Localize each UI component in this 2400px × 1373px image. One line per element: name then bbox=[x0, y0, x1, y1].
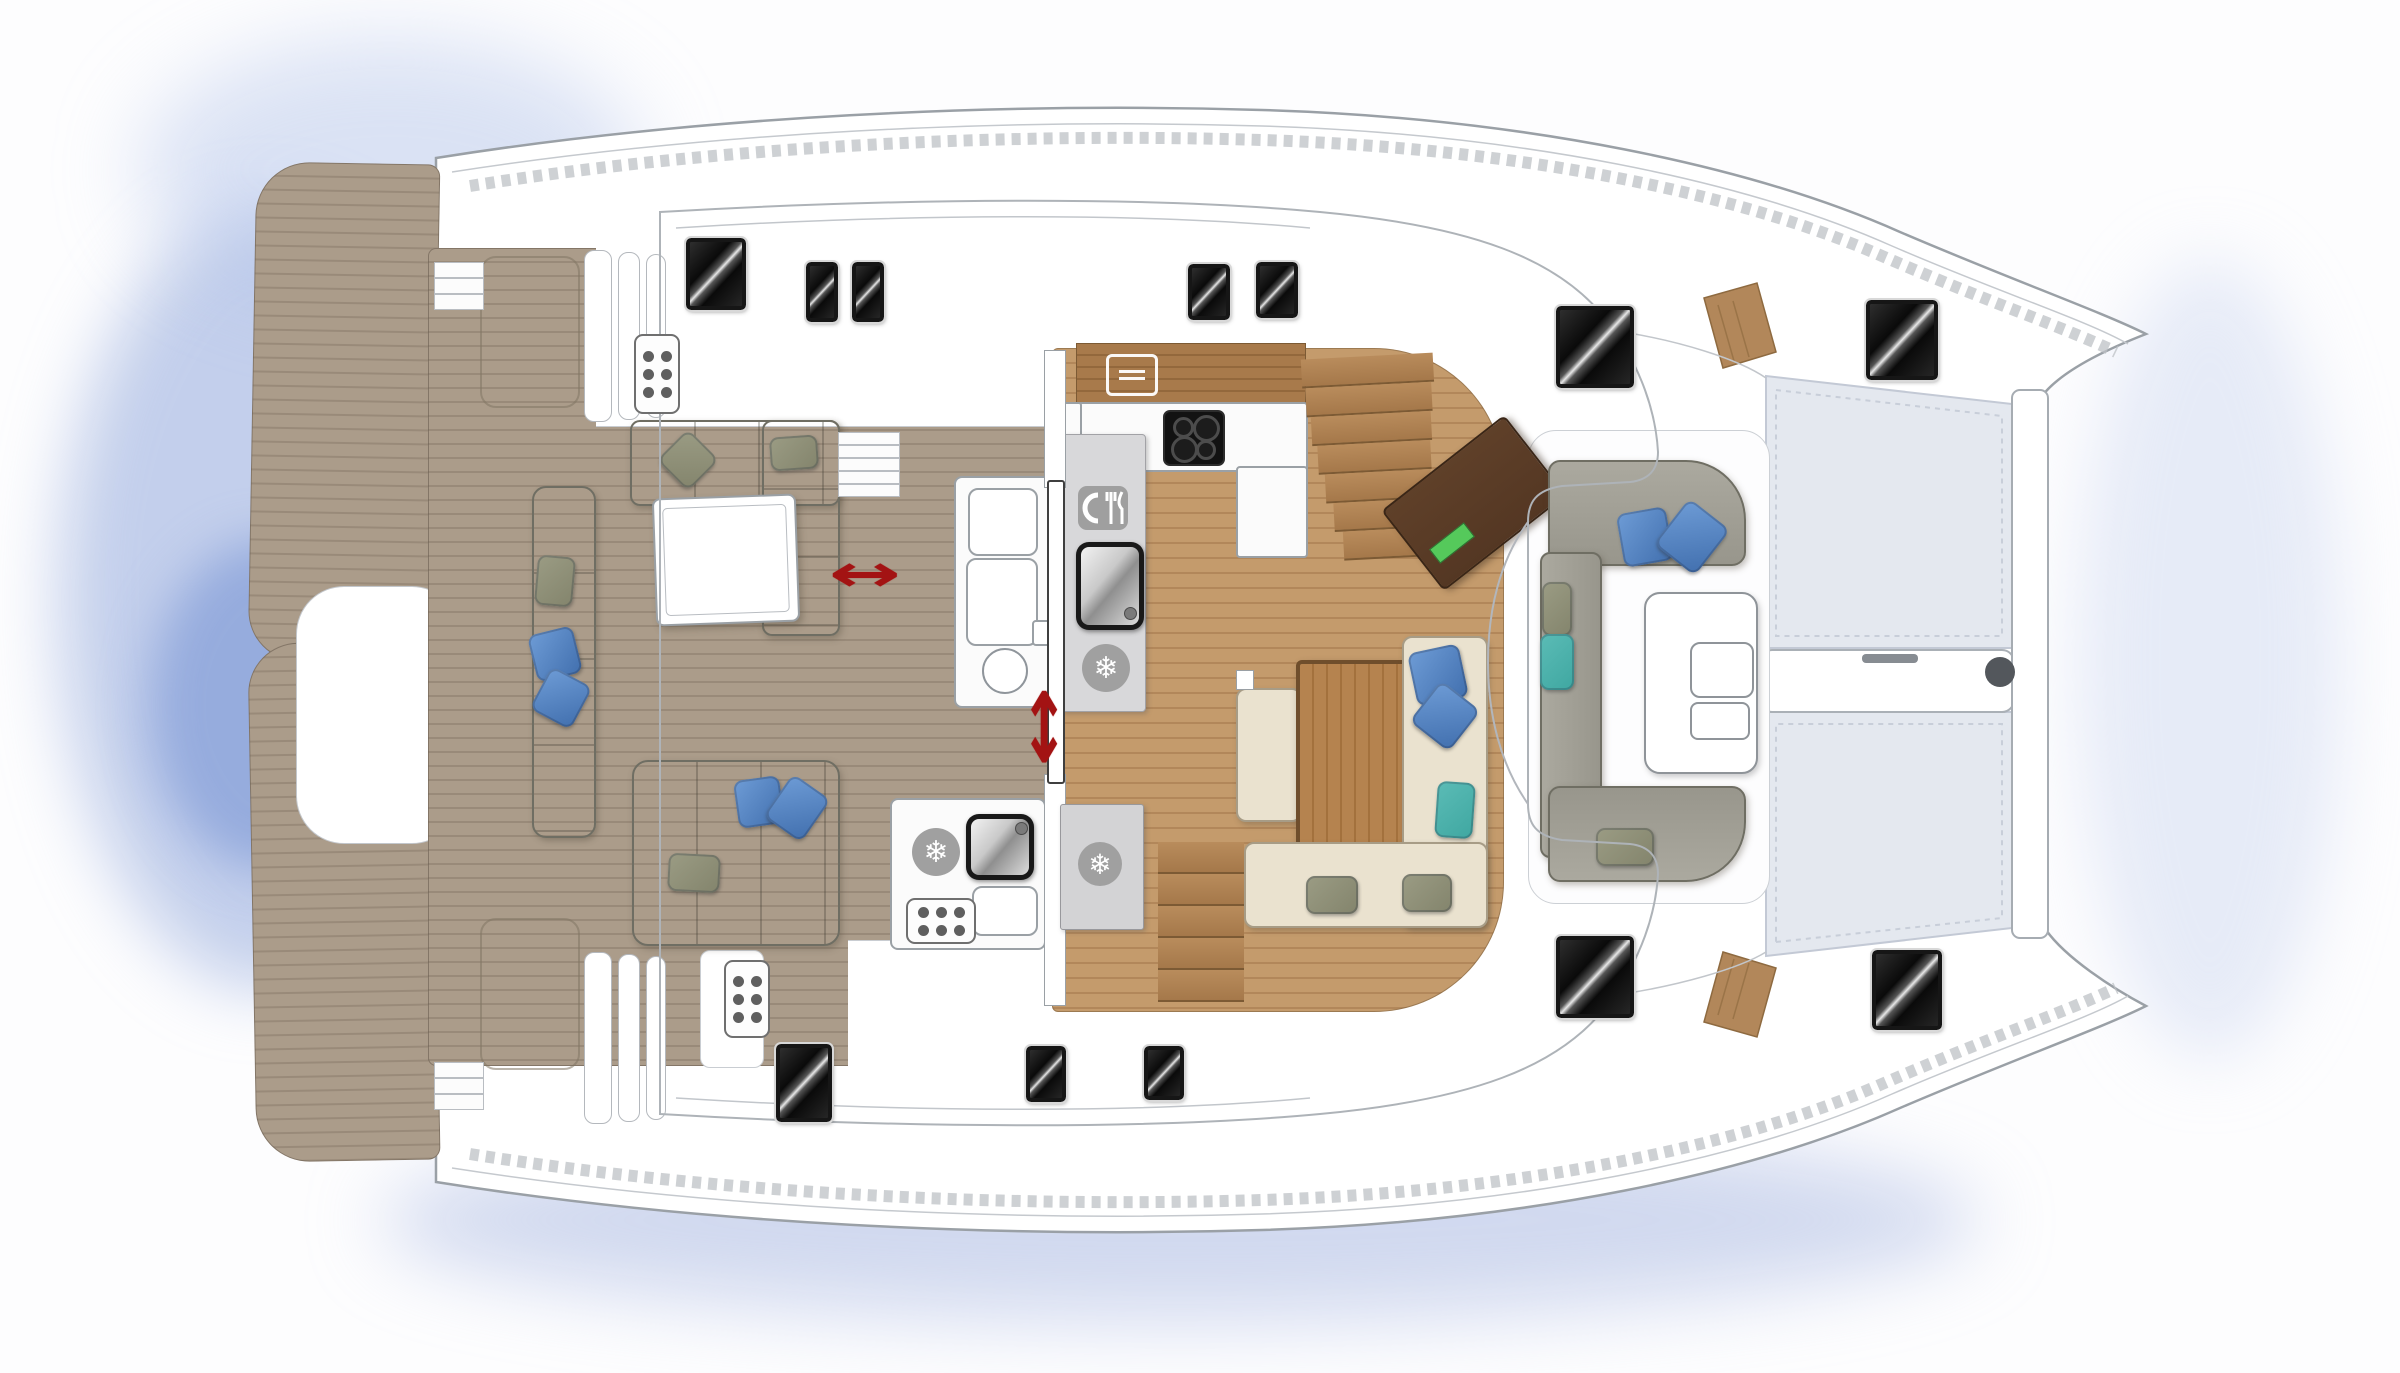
forward-crossbeam bbox=[2012, 390, 2048, 938]
dining-table bbox=[1296, 660, 1408, 848]
anchor-roller-icon bbox=[1985, 657, 2015, 687]
deck-hatch bbox=[852, 262, 884, 322]
pillow-olive bbox=[1306, 876, 1358, 914]
pillow-olive bbox=[1596, 828, 1654, 866]
deck-plan-canvas: ❄ ↕ ↔ bbox=[0, 0, 2400, 1373]
boarding-steps-bottom bbox=[434, 1062, 484, 1110]
roof-pillar bbox=[646, 956, 666, 1120]
pillow-teal bbox=[1540, 634, 1574, 690]
deck-hatch bbox=[686, 238, 746, 310]
freezer-icon: ❄ bbox=[1078, 842, 1122, 886]
slide-arrow-horizontal: ↔ bbox=[829, 548, 901, 599]
roof-pillar bbox=[584, 952, 612, 1124]
boarding-steps-top bbox=[434, 262, 484, 310]
oven-icon bbox=[1106, 354, 1158, 396]
pillow-olive bbox=[769, 434, 819, 471]
control-keypad-icon bbox=[634, 334, 680, 414]
chart-table-book bbox=[1429, 522, 1475, 563]
module-tray bbox=[972, 886, 1038, 936]
control-keypad-icon bbox=[724, 960, 770, 1038]
deck-hatch bbox=[1556, 936, 1634, 1018]
deck-hatch bbox=[776, 1044, 832, 1122]
door-frame-top bbox=[1044, 350, 1066, 488]
floor-hatch-small bbox=[1236, 670, 1254, 690]
roof-pillar bbox=[618, 954, 640, 1122]
aft-cockpit-table bbox=[652, 494, 800, 627]
pillow-olive bbox=[1542, 582, 1572, 636]
deck-hatch bbox=[1026, 1046, 1066, 1102]
deck-hatch bbox=[1188, 264, 1230, 320]
sink-icon bbox=[1076, 542, 1144, 630]
dining-bench bbox=[1236, 688, 1302, 822]
slide-arrow-vertical: ↕ bbox=[1020, 679, 1068, 776]
trampoline-net-bottom bbox=[1766, 712, 2012, 956]
fridge-icon: ❄ bbox=[1082, 644, 1130, 692]
anchor-locker-lid bbox=[1690, 642, 1754, 698]
flybridge-steps bbox=[838, 432, 900, 498]
pillow-olive bbox=[667, 853, 721, 894]
fridge-icon: ❄ bbox=[912, 828, 960, 876]
roof-pillar bbox=[584, 250, 612, 422]
deck-white-bottom-right bbox=[848, 940, 1056, 1071]
control-keypad-icon bbox=[906, 898, 976, 944]
spine-handle bbox=[1862, 654, 1918, 663]
companionway-steps-port bbox=[1158, 842, 1244, 996]
trampoline-net-top bbox=[1766, 376, 2012, 648]
pillow-olive bbox=[1402, 874, 1452, 912]
deck-hatch bbox=[1256, 262, 1298, 318]
deck-hatch bbox=[1866, 300, 1938, 380]
deck-hatch bbox=[806, 262, 838, 322]
deck-locker-lid-bottom bbox=[480, 918, 580, 1070]
module-locker-lid bbox=[968, 488, 1038, 556]
dining-icon bbox=[1078, 486, 1128, 530]
deck-hatch bbox=[1144, 1046, 1184, 1100]
pillow-olive bbox=[534, 554, 576, 607]
cooktop-icon bbox=[1163, 410, 1225, 466]
deck-hatch bbox=[1556, 306, 1634, 388]
deck-hatch bbox=[1872, 950, 1942, 1030]
anchor-locker-lid bbox=[1690, 702, 1750, 740]
galley-counter-right-leg bbox=[1236, 466, 1308, 558]
deck-locker-lid-top bbox=[480, 256, 580, 408]
sink-icon bbox=[966, 814, 1034, 880]
pillow-teal bbox=[1434, 781, 1476, 840]
forward-cockpit-table bbox=[1644, 592, 1758, 774]
module-locker-lid bbox=[966, 558, 1038, 646]
